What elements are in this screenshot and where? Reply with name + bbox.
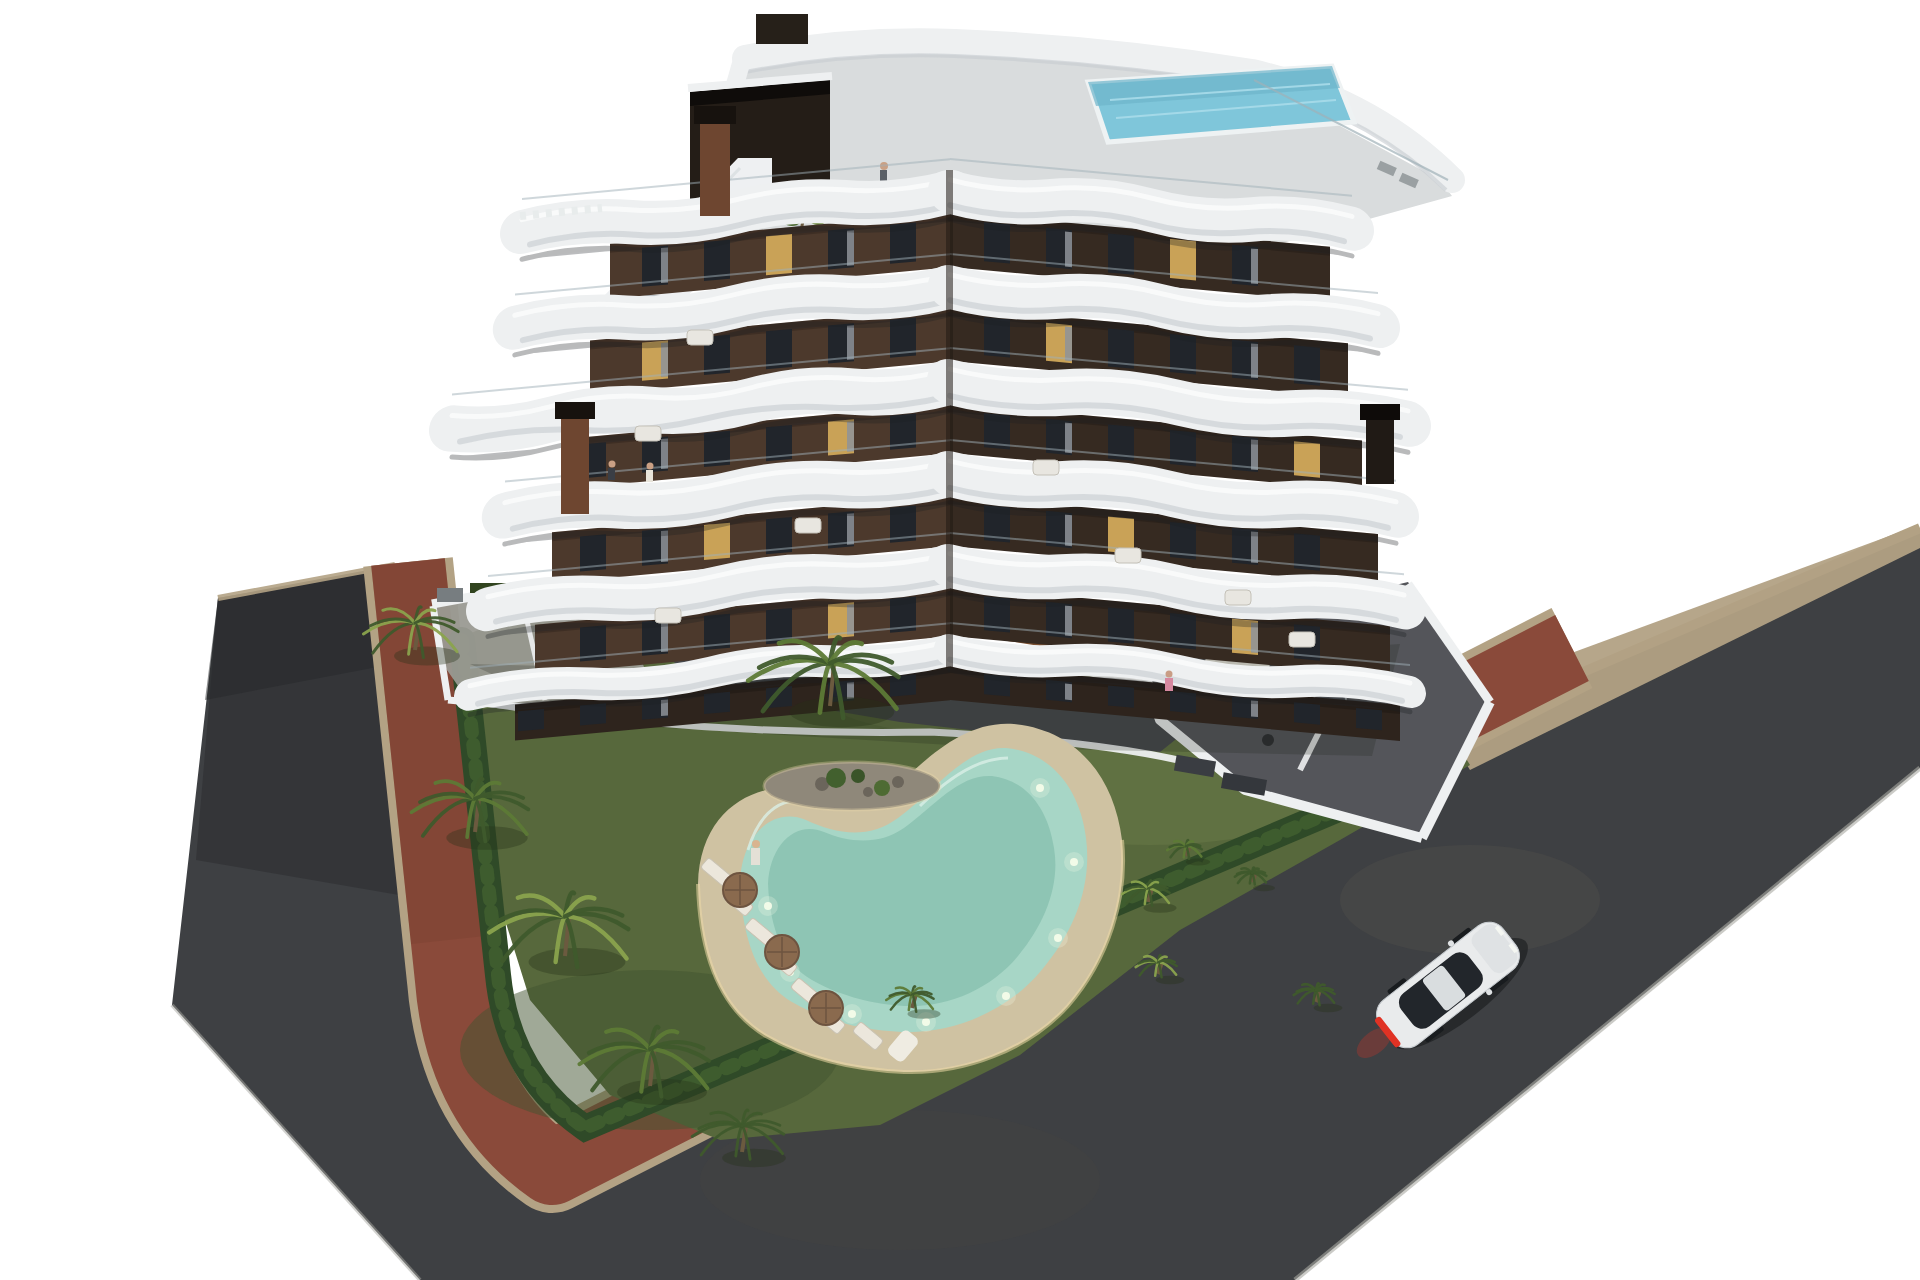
chimney bbox=[1366, 416, 1394, 484]
building-right-wing bbox=[950, 159, 1410, 742]
person-body bbox=[646, 470, 653, 482]
pool-light bbox=[1054, 934, 1062, 942]
balcony-sofa bbox=[1033, 460, 1059, 475]
curtain bbox=[847, 421, 854, 452]
curtain bbox=[1065, 606, 1072, 637]
person-body bbox=[608, 468, 615, 480]
curtain bbox=[661, 247, 668, 283]
palm-shadow bbox=[1156, 976, 1185, 984]
curtain bbox=[847, 682, 854, 699]
pool-light bbox=[1036, 784, 1044, 792]
vent-grille bbox=[437, 588, 463, 602]
window bbox=[518, 709, 544, 731]
curtain bbox=[847, 325, 854, 360]
curtain bbox=[847, 513, 854, 545]
pool-light bbox=[1002, 992, 1010, 1000]
pool-light bbox=[848, 1010, 856, 1018]
palm-shadow bbox=[1144, 903, 1177, 913]
curtain bbox=[661, 438, 668, 469]
window bbox=[1294, 702, 1320, 724]
pool-light bbox=[1070, 858, 1078, 866]
roof-vent bbox=[756, 14, 808, 44]
palm-shadow bbox=[394, 646, 460, 665]
island-plant bbox=[826, 768, 846, 788]
person-head bbox=[609, 461, 616, 468]
architectural-render-canvas: Aerial dusk rendering of a modern seven-… bbox=[0, 0, 1920, 1280]
palm-shadow bbox=[908, 1009, 941, 1019]
balcony-sofa bbox=[795, 518, 821, 533]
chimney bbox=[561, 414, 589, 514]
chimney bbox=[700, 118, 730, 216]
balcony-sofa bbox=[655, 608, 681, 623]
balcony-sofa bbox=[687, 330, 713, 345]
curtain bbox=[847, 604, 854, 635]
palm-shadow bbox=[446, 826, 527, 850]
curtain bbox=[1065, 684, 1072, 701]
island-plant bbox=[851, 769, 865, 783]
palm-shadow bbox=[1253, 885, 1275, 891]
pool-light bbox=[922, 1018, 930, 1026]
window bbox=[580, 703, 606, 725]
island-rock bbox=[892, 776, 904, 788]
chimney-cap bbox=[1360, 404, 1400, 420]
curtain bbox=[1065, 232, 1072, 268]
person-head bbox=[647, 463, 654, 470]
curtain bbox=[1065, 327, 1072, 362]
person-body bbox=[1165, 678, 1173, 691]
curtain bbox=[1251, 343, 1258, 378]
balcony-sofa bbox=[1289, 632, 1315, 647]
curtain bbox=[1065, 423, 1072, 454]
parasol bbox=[809, 991, 843, 1025]
balcony-sofa bbox=[1225, 590, 1251, 605]
building-corner-edge bbox=[946, 170, 953, 668]
balcony-sofa bbox=[1115, 548, 1141, 563]
palm-shadow bbox=[722, 1149, 786, 1168]
person-head bbox=[752, 840, 760, 848]
curtain bbox=[1065, 515, 1072, 547]
window bbox=[1356, 708, 1382, 730]
chimney-cap bbox=[694, 106, 736, 124]
person-body bbox=[751, 848, 760, 865]
curtain bbox=[847, 230, 854, 266]
palm-shadow bbox=[1314, 1004, 1343, 1012]
scene-svg: Aerial dusk rendering of a modern seven-… bbox=[0, 0, 1920, 1280]
person-head bbox=[1166, 671, 1173, 678]
parasol bbox=[765, 935, 799, 969]
window bbox=[1108, 685, 1134, 707]
island-plant bbox=[874, 780, 890, 796]
chimney-cap bbox=[555, 402, 595, 419]
pool-light bbox=[764, 902, 772, 910]
island-rock bbox=[863, 787, 873, 797]
parasol bbox=[723, 873, 757, 907]
balcony-sofa bbox=[635, 426, 661, 441]
curtain bbox=[1251, 248, 1258, 284]
